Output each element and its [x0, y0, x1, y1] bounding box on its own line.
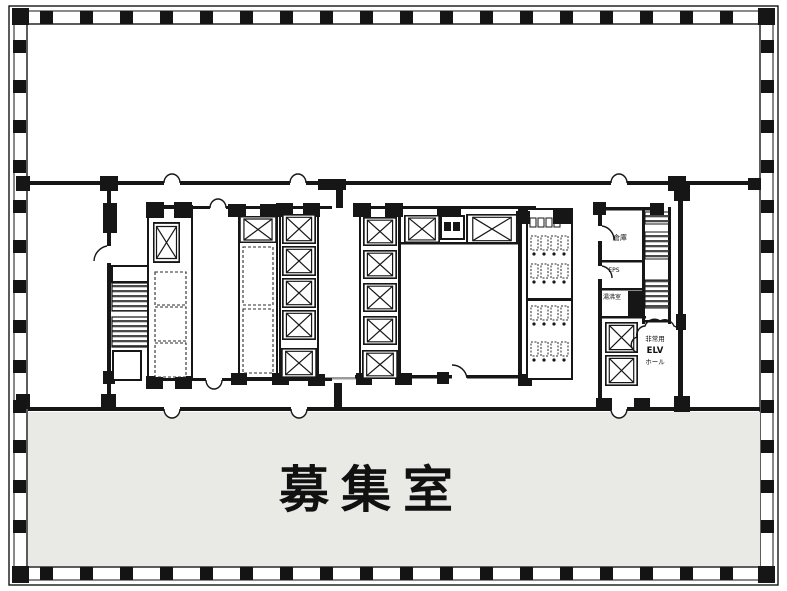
floor-plan-drawing: 募集室 [0, 0, 787, 591]
elevator-shaft [154, 223, 180, 262]
eps-room-label: EPS [608, 267, 619, 274]
main-room: 募集室 [28, 412, 760, 566]
svg-text:ホール: ホール [645, 358, 665, 366]
elevator-shaft [283, 311, 316, 340]
svg-text:非常用: 非常用 [645, 334, 665, 343]
elevator-shaft [405, 216, 440, 243]
elevator-shaft [282, 349, 317, 378]
elevator-shaft [240, 217, 276, 243]
elevator-shaft [364, 251, 397, 279]
middle-core-block [353, 203, 536, 386]
storage-room-label: 倉庫 [613, 233, 627, 242]
bottom-mullion-band [40, 567, 747, 580]
elevator-shaft [283, 215, 316, 244]
stairs-left-flight2 [112, 317, 153, 347]
elevator-shaft [467, 215, 517, 244]
right-mullion-band [761, 40, 774, 551]
left-service-strip [94, 185, 153, 408]
top-mullion-band [40, 11, 747, 24]
elevator-shaft [283, 279, 316, 308]
left-mullion-band [13, 40, 26, 551]
elevator-shaft [283, 247, 316, 276]
right-service-block: 倉庫 EPS 湯沸室 非常用 ELV ホール [593, 185, 690, 412]
kitchenette-room-label: 湯沸室 [603, 293, 621, 301]
stairs-right-flight1 [645, 232, 669, 259]
stairs-right-flight2 [645, 280, 669, 308]
toilet-rooms [516, 209, 572, 379]
elevator-shaft [364, 284, 397, 312]
left-elevator-block [146, 199, 332, 389]
elevator-shaft [364, 317, 397, 345]
svg-text:ELV: ELV [647, 346, 664, 356]
emergency-elv-hall-label: 非常用 ELV ホール [645, 334, 665, 366]
floor-plan: 募集室 [0, 0, 787, 591]
emergency-elevator-shaft [606, 323, 638, 353]
pipe-shaft [628, 291, 642, 318]
emergency-elevator-shaft [606, 356, 638, 386]
elevator-shaft [364, 218, 397, 246]
main-room-label: 募集室 [278, 461, 465, 519]
elevator-shaft [363, 351, 398, 379]
stairs-left-flight1 [112, 283, 153, 311]
stairs-right-top [645, 212, 669, 224]
